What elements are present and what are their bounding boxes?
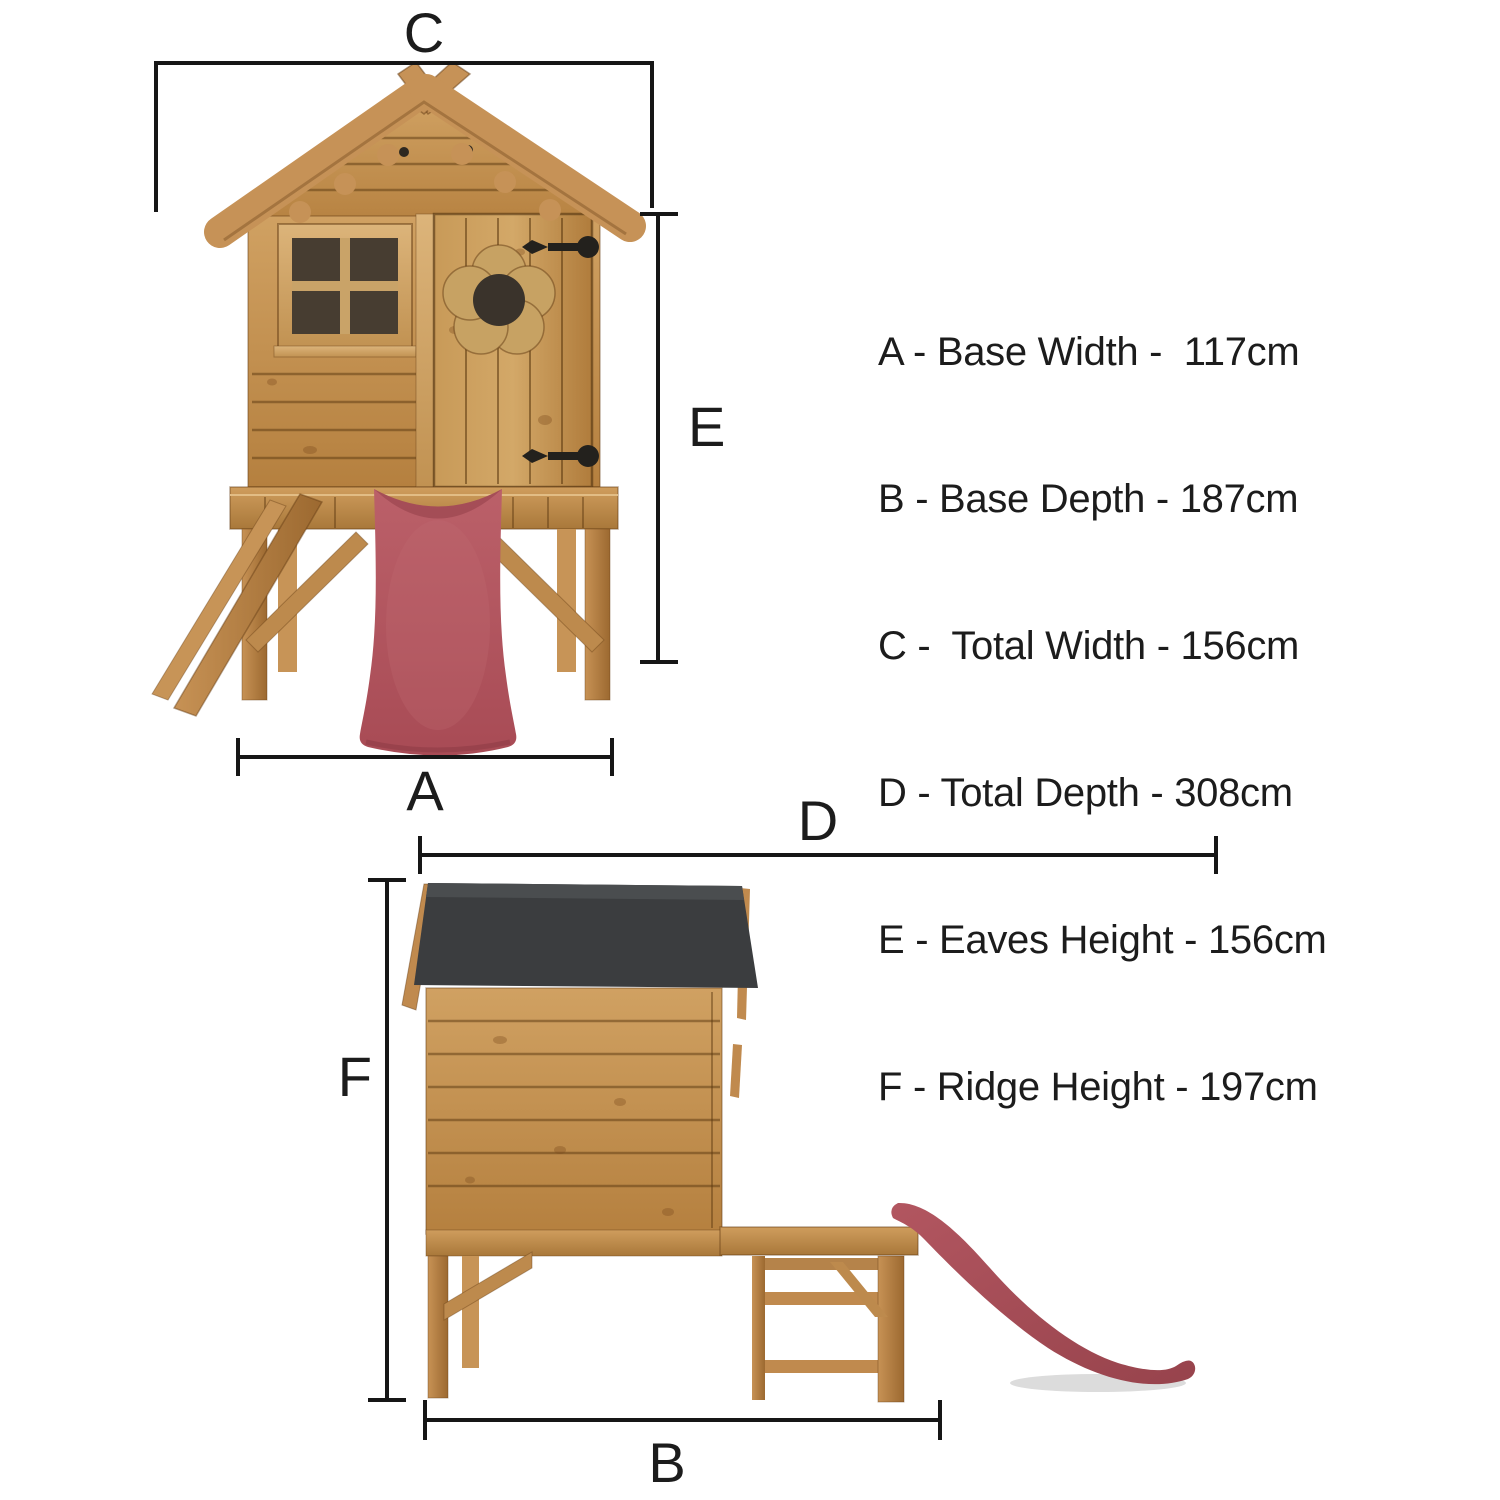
side-bargeboard-right-lower xyxy=(730,1044,742,1098)
front-window xyxy=(274,224,416,357)
dimension-line-e xyxy=(640,214,678,662)
side-platform-deck xyxy=(720,1227,918,1255)
front-view xyxy=(152,62,630,756)
label-f: F xyxy=(338,1045,372,1108)
label-e: E xyxy=(688,395,725,458)
legend-line-e: E - Eaves Height - 156cm xyxy=(878,916,1327,965)
dimension-legend: A - Base Width - 117cm B - Base Depth - … xyxy=(878,230,1327,1210)
side-wall xyxy=(426,988,722,1256)
label-a: A xyxy=(406,759,444,822)
legend-line-c: C - Total Width - 156cm xyxy=(878,622,1327,671)
legend-line-d: D - Total Depth - 308cm xyxy=(878,769,1327,818)
dimension-line-f xyxy=(368,880,406,1400)
side-ladder xyxy=(752,1256,904,1402)
legend-line-f: F - Ridge Height - 197cm xyxy=(878,1063,1327,1112)
playhouse-dimensions-diagram: C E A D F B A - Base Width - 117cm B - B… xyxy=(0,0,1500,1500)
legend-line-a: A - Base Width - 117cm xyxy=(878,328,1327,377)
side-slide xyxy=(891,1203,1195,1384)
front-door xyxy=(416,214,599,487)
label-d: D xyxy=(798,789,838,852)
legend-line-b: B - Base Depth - 187cm xyxy=(878,475,1327,524)
side-legs xyxy=(428,1252,532,1398)
side-roof-felt xyxy=(414,883,758,988)
label-b: B xyxy=(648,1431,685,1494)
label-c: C xyxy=(404,1,444,64)
front-slide xyxy=(360,489,517,756)
